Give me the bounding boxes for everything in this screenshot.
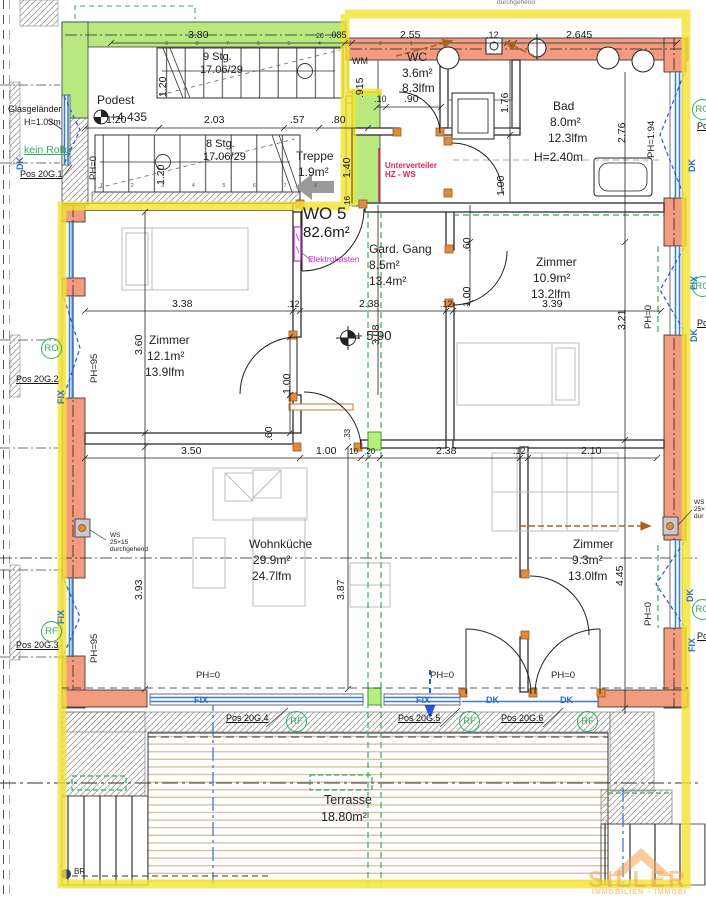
parapet-label: PH=95 xyxy=(90,634,100,663)
dim-v: .60 xyxy=(264,426,275,441)
dim: .20 xyxy=(364,448,375,456)
unit-label: WO 5 xyxy=(303,205,346,222)
dim: 3.80 xyxy=(188,30,208,41)
window-type: FIX xyxy=(194,696,208,705)
room-zimmer1: Zimmer xyxy=(149,334,190,346)
terrasse-area: 18.80m² xyxy=(321,811,367,824)
wc-area: 3.6m² xyxy=(402,67,433,79)
pos-label: Pos 20G.3 xyxy=(16,641,59,650)
zimmer1-lfm: 13.9lfm xyxy=(145,366,184,378)
parapet-label: PH=0 xyxy=(89,156,99,180)
floor-plan: WO 5 82.6m² Podest +4.435 9 Stg. 17.06/2… xyxy=(0,0,706,898)
badge-rf: RF xyxy=(41,621,62,642)
badge-ro: RO xyxy=(692,276,706,297)
dim: .90 xyxy=(404,94,419,105)
bad-area: 8.0m² xyxy=(550,116,581,128)
room-wc: WC xyxy=(407,51,427,63)
watermark-logo-subtext: IMMOBILIEN – IMMOBI xyxy=(592,889,687,896)
parapet-label: PH=0 xyxy=(430,671,454,681)
dim: 3.38 xyxy=(172,299,192,310)
window-type: DK xyxy=(690,329,699,342)
dim: .80 xyxy=(331,115,346,126)
dim: 2.55 xyxy=(400,30,420,41)
pos-label: Pos 20G.1 xyxy=(20,170,63,179)
unterverteiler-type: HZ - WS xyxy=(385,171,416,179)
glass-railing-label: Glasgeländer xyxy=(8,105,62,114)
parapet-label: PH=0 xyxy=(196,671,220,681)
br-marker: BR xyxy=(74,868,85,876)
elektrokasten-label: Elektrokasten xyxy=(308,255,360,264)
dim-v: 1.00 xyxy=(496,176,507,196)
room-treppe: Treppe xyxy=(296,150,334,162)
window-type: DK xyxy=(688,159,697,172)
dim-v: 1.00 xyxy=(282,374,293,394)
window-type: DK xyxy=(560,696,573,705)
top-edge-note: durchgehend xyxy=(497,0,535,7)
parapet-label: PH=0 xyxy=(644,305,654,329)
parapet-label: PH=95 xyxy=(90,354,100,383)
parapet-label: PH=0 xyxy=(644,602,654,626)
dim: 3.50 xyxy=(181,446,201,457)
gang-lfm: 13.4m² xyxy=(369,275,406,287)
dim-v: 1.40 xyxy=(342,158,353,178)
dim: .12 xyxy=(513,447,526,456)
pos-label: Po xyxy=(697,122,706,131)
wohnkueche-lfm: 24.7lfm xyxy=(252,570,291,582)
dim-v: 4.45 xyxy=(615,566,626,586)
badge-ro: RO xyxy=(692,599,706,620)
dim: 2.645 xyxy=(566,30,592,41)
dim: 2.38 xyxy=(436,446,456,457)
room-zimmer3: Zimmer xyxy=(573,538,614,550)
dim-v: 1.20 xyxy=(156,165,167,185)
room-zimmer2: Zimmer xyxy=(536,256,577,268)
stairs-up-ratio: 17.06/29 xyxy=(200,65,243,76)
dim-v: 3.93 xyxy=(134,580,145,600)
room-terrasse: Terrasse xyxy=(324,794,372,807)
kein-rollo-note: kein Rollo xyxy=(24,145,70,156)
zimmer3-lfm: 13.0lfm xyxy=(568,570,607,582)
gang-area: 8.5m² xyxy=(369,259,400,271)
dim-v: .60 xyxy=(462,237,473,252)
badge-ro: RO xyxy=(692,99,706,120)
ws-note-right-cont: dur xyxy=(694,514,703,521)
dim: .12 xyxy=(287,300,300,309)
dim: 1.20 xyxy=(106,115,126,126)
treppe-area: 1.9m² xyxy=(298,166,329,178)
terrace-area xyxy=(0,120,705,885)
zimmer1-area: 12.1m² xyxy=(147,350,184,362)
stair-tread-numbers-up: 9 8 7 6 5 4 3 2 1 xyxy=(165,42,426,48)
pos-label: Pos 20G.5 xyxy=(398,714,441,723)
dim: 1.00 xyxy=(316,446,336,457)
zimmer2-area: 10.9m² xyxy=(533,272,570,284)
dim-v: 1.20 xyxy=(158,77,169,97)
stair-tread-numbers-down: 1 2 3 4 5 6 7 8 xyxy=(100,184,330,190)
dim: 3.39 xyxy=(542,299,562,310)
ws-note-cont: durchgehend xyxy=(110,547,148,554)
dim-v: .16 xyxy=(344,196,352,207)
dim: 20 xyxy=(316,33,324,40)
unit-area: 82.6m² xyxy=(303,225,350,240)
dim: .10 xyxy=(374,95,387,104)
stairs-up-label: 9 Stg. xyxy=(203,52,232,63)
dim: 2.03 xyxy=(204,115,224,126)
dim-v: 3.87 xyxy=(336,580,347,600)
washing-machine-label: WM xyxy=(352,57,368,66)
badge-ro: RO xyxy=(41,338,62,359)
window-type: FIX xyxy=(57,610,66,624)
unterverteiler-label: Unterverteiler xyxy=(385,162,437,170)
pos-label: Po xyxy=(697,319,706,328)
dim: .57 xyxy=(290,115,305,126)
dim: .10 xyxy=(347,448,358,456)
badge-rf: RF xyxy=(459,711,480,732)
zimmer3-area: 9.3m² xyxy=(572,554,603,566)
dim: 2.10 xyxy=(581,446,601,457)
badge-rf: RF xyxy=(286,711,307,732)
parapet-label: PH=0 xyxy=(551,671,575,681)
dim-v: 3.60 xyxy=(134,335,145,355)
room-bad: Bad xyxy=(553,100,574,112)
stairs-down-ratio: 17.06/29 xyxy=(203,152,246,163)
bad-lfm: 12.3lfm xyxy=(548,132,587,144)
dim-v: 3.21 xyxy=(617,310,628,330)
room-wohnkueche: Wohnküche xyxy=(249,538,312,550)
dim: 2.38 xyxy=(359,299,379,310)
pos-label: Po xyxy=(697,632,706,641)
window-type: FIX xyxy=(57,390,66,404)
pos-label: Pos 20G.2 xyxy=(16,375,59,384)
room-podest: Podest xyxy=(97,94,134,106)
room-gang: Gard. Gang xyxy=(369,243,432,255)
glass-railing-height: H=1.03m xyxy=(24,118,61,127)
dim-v: 1.00 xyxy=(462,287,473,307)
badge-rf: RF xyxy=(577,711,598,732)
parapet-label: PH=1.94 xyxy=(647,121,657,158)
window-type: FIX xyxy=(688,638,697,652)
window-type: DK xyxy=(486,696,499,705)
dim: .12 xyxy=(486,31,499,40)
bad-height: H=2.40m xyxy=(534,151,583,163)
dim: .085 xyxy=(329,31,347,40)
dim: .12 xyxy=(440,300,453,309)
dim-v: .33 xyxy=(344,429,352,440)
pos-label: Pos 20G.4 xyxy=(226,714,269,723)
window-type: FIX xyxy=(416,696,430,705)
pos-label: Pos 20G.6 xyxy=(501,714,544,723)
window-type: DK xyxy=(686,589,695,602)
dim-v: 3.08 xyxy=(371,325,382,345)
dim-v: 2.76 xyxy=(617,123,628,143)
dim-v: .915 xyxy=(355,78,366,98)
wohnkueche-area: 29.9m² xyxy=(253,554,290,566)
dim-v: 1.76 xyxy=(500,93,511,113)
stairs-down-label: 8 Stg. xyxy=(206,139,235,150)
